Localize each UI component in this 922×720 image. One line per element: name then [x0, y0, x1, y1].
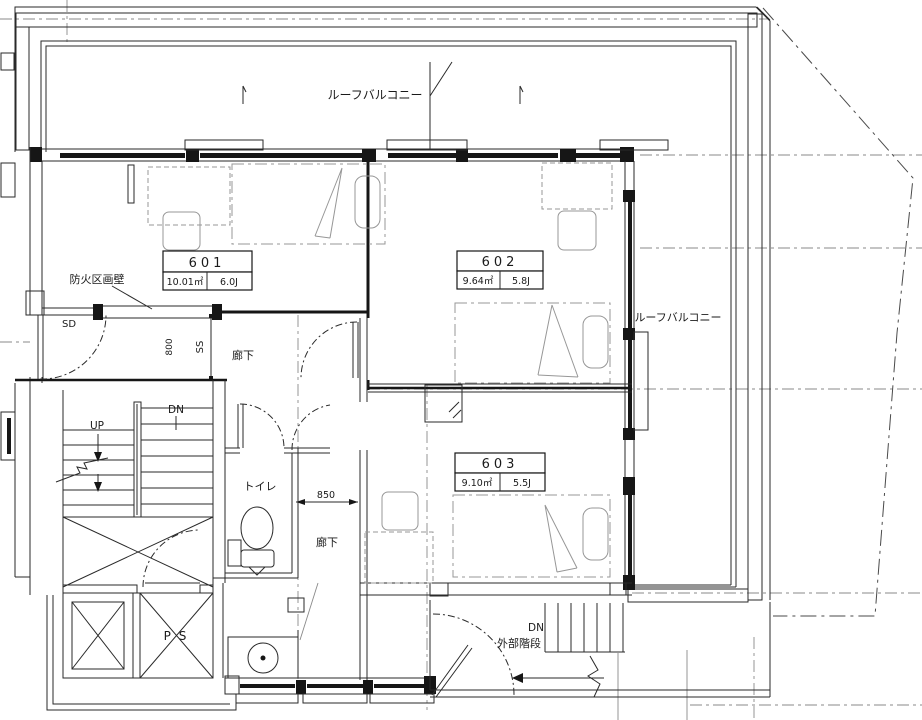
pipe-space: P S: [140, 593, 213, 678]
railing-top: [16, 13, 757, 27]
room-602-area: 9.64㎡: [463, 276, 494, 287]
floor-plan-sheet: ルーフバルコニー ルーフバルコニー: [0, 0, 922, 720]
internal-stairs: UP DN: [56, 390, 213, 587]
room-603: 603 9.10㎡ 5.5J: [365, 453, 610, 583]
room-601-number: 601: [189, 256, 226, 271]
dn-external-label: DN: [528, 622, 544, 634]
dimension-800-value: 800: [165, 338, 175, 355]
dimension-850: 850: [296, 490, 358, 505]
railing-bottom-right: [628, 589, 748, 602]
railing-right: [748, 14, 762, 600]
dimension-850-value: 850: [317, 490, 335, 501]
roof-balcony: ルーフバルコニー ルーフバルコニー: [15, 7, 770, 602]
room-601: 601 10.01㎡ 6.0J: [148, 164, 385, 290]
external-stairs: DN 外部階段: [497, 603, 625, 697]
ss-label: SS: [195, 341, 206, 354]
door-602: [301, 322, 358, 378]
room-603-tatami: 5.5J: [513, 478, 531, 489]
up-label: UP: [90, 420, 104, 432]
fire-wall-label: 防火区画壁: [70, 272, 125, 286]
room-602-tatami: 5.8J: [512, 276, 530, 287]
site-boundary: [763, 8, 913, 616]
room-601-tatami: 6.0J: [220, 277, 238, 288]
door-toilet: [238, 404, 284, 448]
sd-label: SD: [62, 319, 76, 330]
room-601-area: 10.01㎡: [167, 277, 204, 288]
wall-shaft: [425, 385, 462, 422]
room-603-area: 9.10㎡: [462, 478, 493, 489]
roof-balcony-right-label: ルーフバルコニー: [634, 311, 721, 324]
room-603-number: 603: [482, 457, 519, 472]
corridor-upper-label: 廊下: [232, 348, 254, 362]
toilet-label: トイレ: [244, 480, 277, 493]
corridor: SD 廊下 廊下 800 SS 850: [38, 314, 358, 549]
corridor-lower-label: 廊下: [316, 535, 338, 549]
room-602: 602 9.64㎡ 5.8J: [455, 163, 648, 430]
desk-602: [542, 163, 612, 250]
desk-601: [148, 167, 230, 250]
desk-603: [365, 492, 433, 583]
room-603-label: 603 9.10㎡ 5.5J: [455, 453, 545, 491]
elevator-shaft: [63, 585, 213, 678]
door-exterior-south: [432, 614, 514, 697]
toilet-fixture: [228, 507, 274, 575]
bed-601: [232, 164, 385, 244]
dn-stairs-label: DN: [168, 404, 184, 416]
dimension-800: 800 SS: [165, 314, 213, 380]
laundry-area: [228, 583, 514, 697]
pipe-space-label: P S: [164, 629, 189, 643]
grid-lines: [0, 0, 922, 720]
railing-left: [16, 27, 29, 150]
floor-plan-drawing: ルーフバルコニー ルーフバルコニー: [0, 0, 922, 720]
room-602-number: 602: [482, 255, 519, 270]
fire-protection-wall: [93, 286, 222, 320]
toilet-room: トイレ: [213, 448, 298, 578]
room-602-label: 602 9.64㎡ 5.8J: [457, 251, 543, 289]
external-stairs-label: 外部階段: [497, 636, 541, 650]
room-601-label: 601 10.01㎡ 6.0J: [163, 251, 252, 290]
bed-603: [453, 495, 610, 577]
bed-602: [455, 303, 610, 383]
roof-balcony-top-label: ルーフバルコニー: [327, 88, 422, 102]
